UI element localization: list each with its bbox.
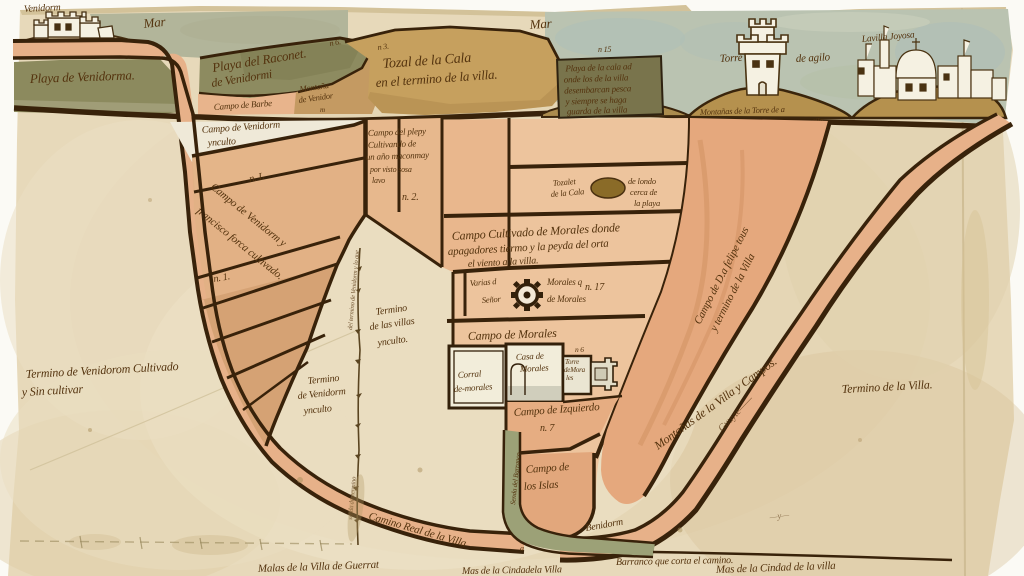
svg-text:Campo del plepy: Campo del plepy — [368, 126, 427, 138]
svg-text:Mar: Mar — [528, 15, 553, 32]
svg-text:de londo: de londo — [628, 176, 656, 186]
svg-text:Torre: Torre — [720, 52, 744, 65]
svg-text:Casa de: Casa de — [516, 351, 545, 362]
svg-text:Venidorm: Venidorm — [24, 2, 61, 15]
svg-text:Morales q: Morales q — [546, 277, 583, 287]
svg-text:de agilo: de agilo — [796, 51, 831, 65]
svg-text:por visto sosa: por visto sosa — [369, 165, 412, 174]
svg-text:Cultivando de: Cultivando de — [368, 138, 417, 150]
svg-text:Varias d: Varias d — [469, 276, 497, 288]
svg-text:n 15: n 15 — [598, 45, 611, 54]
svg-text:a: a — [520, 544, 524, 553]
svg-text:Corral: Corral — [457, 368, 482, 380]
svg-text:lavo: lavo — [372, 176, 385, 185]
svg-text:Morales: Morales — [519, 362, 550, 374]
svg-text:les: les — [566, 374, 574, 382]
svg-text:n. 17: n. 17 — [585, 282, 605, 293]
svg-text:Torre: Torre — [565, 358, 579, 366]
svg-text:Mas de la Cindadela Villa: Mas de la Cindadela Villa — [461, 564, 562, 576]
svg-text:n. 2.: n. 2. — [402, 192, 419, 203]
svg-text:m: m — [320, 106, 325, 114]
svg-text:deMora: deMora — [564, 366, 586, 374]
svg-text:los Islas: los Islas — [523, 479, 558, 493]
svg-text:la playa: la playa — [634, 198, 660, 208]
svg-text:n 3.: n 3. — [377, 41, 390, 51]
svg-text:guarda de la villa: guarda de la villa — [567, 104, 628, 116]
svg-text:Mar: Mar — [142, 14, 167, 31]
svg-text:de Morales: de Morales — [547, 294, 586, 304]
svg-text:cerca de: cerca de — [630, 187, 658, 197]
svg-text:Señor: Señor — [481, 294, 501, 305]
svg-text:n. 7: n. 7 — [540, 423, 555, 434]
svg-text:n 6: n 6 — [575, 345, 584, 354]
